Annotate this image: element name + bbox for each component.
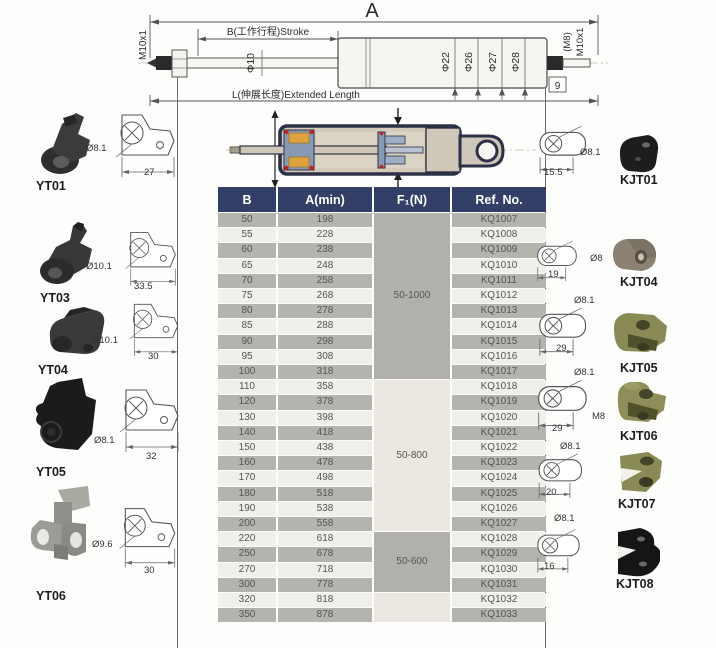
yt05-name: YT05 [36,466,66,479]
cell-ref-no: KQ1025 [452,487,546,501]
cell-ref-no: KQ1011 [452,274,546,288]
cell-b: 65 [218,259,276,273]
bracket-line-drawing [114,224,192,296]
yt04-photo [40,302,110,364]
cell-a-min: 318 [278,365,372,379]
cell-ref-no: KQ1013 [452,304,546,318]
kjt07-width-label: 20 [546,488,557,498]
cell-b: 140 [218,426,276,440]
section-end-plug [426,128,460,172]
cell-a-min: 518 [278,487,372,501]
cell-a-min: 358 [278,380,372,394]
cell-ref-no: KQ1021 [452,426,546,440]
cell-ref-no: KQ1023 [452,456,546,470]
cell-a-min: 818 [278,593,372,607]
cell-force-range: 50-1000 [374,213,450,379]
section-piston-stem [385,147,423,153]
cell-a-min: 558 [278,517,372,531]
kjt08-diameter-label: Ø8.1 [554,514,575,524]
yt04-diameter-label: Ø10.1 [92,336,118,346]
cell-b: 90 [218,335,276,349]
section-piston-plate [378,132,385,168]
hex-nut [172,50,187,77]
cell-a-min: 718 [278,563,372,577]
cell-b: 250 [218,547,276,561]
cell-a-min: 878 [278,608,372,622]
kjt08-photo [608,526,660,580]
kjt05-width-label: 29 [556,344,567,354]
cell-a-min: 778 [278,578,372,592]
cell-a-min: 238 [278,243,372,257]
cell-a-min: 438 [278,441,372,455]
header-ref-no: Ref. No. [452,187,546,212]
cell-a-min: 378 [278,395,372,409]
cell-ref-no: KQ1032 [452,593,546,607]
kjt08-name: KJT08 [616,578,654,591]
cell-b: 110 [218,380,276,394]
cell-ref-no: KQ1010 [452,259,546,273]
cell-b: 75 [218,289,276,303]
cell-ref-no: KQ1033 [452,608,546,622]
cell-a-min: 278 [278,304,372,318]
seal-lower [289,157,309,167]
cell-b: 160 [218,456,276,470]
cell-b: 190 [218,502,276,516]
kjt04-drawing [536,238,592,286]
yt06-name: YT06 [36,590,66,603]
left-thread-block [156,56,172,70]
spec-table-header-row: B A(min) F₁(N) Ref. No. [218,187,546,212]
cell-a-min: 308 [278,350,372,364]
cell-ref-no: KQ1017 [452,365,546,379]
cell-a-min: 258 [278,274,372,288]
yt05-photo [28,374,112,466]
cell-b: 85 [218,319,276,333]
kjt06-drawing [536,378,606,434]
cell-b: 95 [218,350,276,364]
yt03-diameter-label: Ø10.1 [86,262,112,272]
cell-a-min: 288 [278,319,372,333]
header-f1n: F₁(N) [374,187,450,212]
cell-b: 150 [218,441,276,455]
yt05-width-label: 32 [146,452,157,462]
spec-table-body: 5019850-1000KQ100755228KQ100860238KQ1009… [218,213,546,622]
cell-b: 100 [218,365,276,379]
yt01-diameter-label: Ø8.1 [86,144,107,154]
kjt04-width-label: 19 [548,270,559,280]
cell-a-min: 298 [278,335,372,349]
left-thread-label: M10x1 [138,30,149,60]
cell-b: 50 [218,213,276,227]
cell-ref-no: KQ1018 [452,380,546,394]
kjt04-name: KJT04 [620,276,658,289]
cell-ref-no: KQ1030 [452,563,546,577]
yt01-name: YT01 [36,180,66,193]
yt04-width-label: 30 [148,352,159,362]
stroke-label: B(工作行程)Stroke [227,25,310,38]
kjt01-photo [612,128,662,176]
cell-b: 270 [218,563,276,577]
yt01-photo [34,106,106,178]
cell-a-min: 498 [278,471,372,485]
yt03-photo [30,220,104,292]
cell-b: 320 [218,593,276,607]
gas-spring-cross-section [226,106,538,190]
cell-ref-no: KQ1031 [452,578,546,592]
table-row: 320818KQ1032 [218,593,546,607]
kjt01-name: KJT01 [620,174,658,187]
cell-ref-no: KQ1014 [452,319,546,333]
kjt07-name: KJT07 [618,498,656,511]
cell-b: 120 [218,395,276,409]
yt06-diameter-label: Ø9.6 [92,540,113,550]
cell-a-min: 418 [278,426,372,440]
kjt05-drawing [536,306,606,360]
right-thread-block [547,56,563,70]
yt06-photo [24,484,108,584]
yt06-width-label: 30 [144,566,155,576]
cell-b: 300 [218,578,276,592]
kjt06-name: KJT06 [620,430,658,443]
kjt05-diameter-label: Ø8.1 [574,296,595,306]
cell-force-range: 50-800 [374,380,450,531]
yt03-width-label: 33.5 [134,282,153,292]
piston-rod [187,58,338,68]
kjt04-diameter-label: Ø8 [590,254,603,264]
right-stud [563,59,590,67]
kjt05-photo [608,306,672,364]
eyelet-line-drawing [536,378,606,434]
eyelet-line-drawing [536,238,592,286]
cell-b: 55 [218,228,276,242]
cell-ref-no: KQ1024 [452,471,546,485]
kjt06-width-label: 29 [552,424,563,434]
cell-ref-no: KQ1019 [452,395,546,409]
yt03-drawing [114,224,192,296]
cell-ref-no: KQ1008 [452,228,546,242]
datasheet-page: A B(工作行程)Stroke M10x1 Φ10 Φ22 Φ2 [0,0,716,648]
cell-a-min: 198 [278,213,372,227]
kjt04-photo [608,232,660,276]
cell-b: 200 [218,517,276,531]
cell-b: 180 [218,487,276,501]
body-dia-26-label: Φ26 [463,52,475,72]
gas-spring-dimension-drawing: A B(工作行程)Stroke M10x1 Φ10 Φ22 Φ2 [0,0,716,106]
cell-a-min: 228 [278,228,372,242]
cell-force-range: 50-600 [374,532,450,592]
kjt08-width-label: 16 [544,562,555,572]
cell-force-range [374,593,450,622]
dim-a-label: A [365,0,379,22]
seal-upper [289,133,309,143]
cell-b: 170 [218,471,276,485]
cell-a-min: 618 [278,532,372,546]
header-a-min: A(min) [278,187,372,212]
right-thread-label: M10x1 [575,28,586,57]
kjt06-diameter-label: Ø8.1 [574,368,595,378]
cell-ref-no: KQ1009 [452,243,546,257]
end-dim-label: 9 [555,81,561,92]
cell-b: 80 [218,304,276,318]
cell-ref-no: KQ1026 [452,502,546,516]
spec-table: B A(min) F₁(N) Ref. No. 5019850-1000KQ10… [216,186,548,623]
cell-ref-no: KQ1007 [452,213,546,227]
cell-a-min: 268 [278,289,372,303]
cell-ref-no: KQ1015 [452,335,546,349]
cell-b: 70 [218,274,276,288]
rod-diameter-label: Φ10 [245,53,257,73]
kjt07-photo [610,448,666,500]
body-dia-28-label: Φ28 [510,52,522,72]
cell-ref-no: KQ1028 [452,532,546,546]
kjt05-name: KJT05 [620,362,658,375]
cell-a-min: 248 [278,259,372,273]
kjt07-diameter-label: Ø8.1 [560,442,581,452]
cell-b: 220 [218,532,276,546]
body-dia-22-label: Φ22 [440,52,452,72]
table-row: 22061850-600KQ1028 [218,532,546,546]
kjt06-photo [610,376,674,430]
cell-a-min: 678 [278,547,372,561]
cell-a-min: 478 [278,456,372,470]
kjt01-width-label: 15.5 [544,168,563,178]
body-dia-27-label: Φ27 [487,52,499,72]
cell-ref-no: KQ1020 [452,411,546,425]
cell-a-min: 538 [278,502,372,516]
cell-b: 130 [218,411,276,425]
yt01-width-label: 27 [144,168,155,178]
yt05-diameter-label: Ø8.1 [94,436,115,446]
cell-ref-no: KQ1029 [452,547,546,561]
cell-ref-no: KQ1012 [452,289,546,303]
cell-ref-no: KQ1022 [452,441,546,455]
section-eyelet-hole [477,141,497,161]
right-thread-m8-label: (M8) [562,32,573,52]
cell-b: 350 [218,608,276,622]
kjt06-thread-label: M8 [592,412,605,422]
cell-ref-no: KQ1027 [452,517,546,531]
header-b: B [218,187,276,212]
cell-ref-no: KQ1016 [452,350,546,364]
table-row: 11035850-800KQ1018 [218,380,546,394]
cell-a-min: 398 [278,411,372,425]
kjt01-diameter-label: Ø8.1 [580,148,601,158]
table-row: 5019850-1000KQ1007 [218,213,546,227]
extended-length-label: L(伸展长度)Extended Length [232,88,360,101]
eyelet-line-drawing [536,306,606,360]
cell-b: 60 [218,243,276,257]
